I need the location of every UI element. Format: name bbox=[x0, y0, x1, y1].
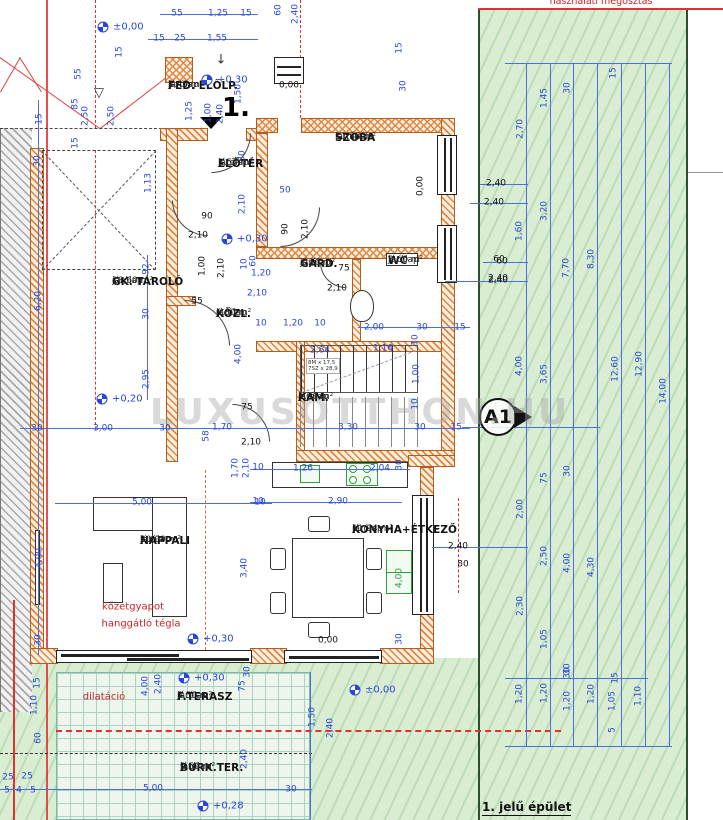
dining-table bbox=[292, 538, 364, 618]
level-value: +0,30 bbox=[203, 634, 234, 645]
dimension-label: 25 bbox=[2, 774, 13, 783]
property-line-left2 bbox=[13, 600, 15, 820]
dimension-label: 80 bbox=[457, 561, 468, 570]
chair bbox=[270, 548, 286, 570]
red-note: dilatáció bbox=[83, 692, 125, 703]
division-note: használati megosztás bbox=[550, 0, 653, 7]
dimension-label: 2,50 bbox=[108, 106, 117, 126]
dimension-label: 2,40 bbox=[488, 277, 508, 286]
wall bbox=[30, 648, 58, 664]
dimension-label: 30 bbox=[159, 425, 170, 434]
dimension-label: 15 bbox=[454, 324, 465, 333]
dimension-label: 15 bbox=[116, 46, 125, 57]
level-marker-icon bbox=[97, 394, 108, 405]
dimension-label: 2,10 bbox=[302, 219, 311, 239]
level-marker-icon bbox=[188, 634, 199, 645]
dimension-label: 2,50 bbox=[82, 106, 91, 126]
level-value: +0,20 bbox=[112, 394, 143, 405]
burner-icon bbox=[363, 476, 371, 484]
eaves-line bbox=[0, 128, 162, 129]
red-note: hanggátló tégla bbox=[102, 619, 181, 630]
level-value: +0,30 bbox=[217, 75, 248, 86]
wall bbox=[408, 455, 455, 467]
dimension-label: 1,20 bbox=[516, 684, 525, 704]
wall bbox=[380, 648, 434, 664]
dimension-label: 60 bbox=[35, 732, 44, 743]
dimension-label: 3,30 bbox=[338, 424, 358, 433]
sliding-door bbox=[284, 650, 382, 663]
axis-line bbox=[205, 470, 206, 650]
dimension-label: 1,50 bbox=[309, 707, 318, 727]
level-value: +0,28 bbox=[213, 801, 244, 812]
dimension-label: 30 bbox=[400, 80, 409, 91]
wall bbox=[301, 118, 455, 133]
benchmark-icon: ▽ bbox=[94, 86, 104, 101]
dimension-label: 2,10 bbox=[188, 232, 208, 241]
sliding-door bbox=[56, 650, 252, 663]
window bbox=[412, 495, 434, 615]
dim-line bbox=[55, 503, 272, 504]
dimension-label: 2,40 bbox=[484, 199, 504, 208]
dimension-label: 60 bbox=[250, 255, 259, 266]
dimension-label: 2,10 bbox=[247, 290, 267, 299]
dimension-label: 5,00 bbox=[132, 499, 152, 508]
down-arrow-icon: ↓ bbox=[216, 53, 227, 68]
wall bbox=[256, 247, 455, 259]
dimension-label: 2,40 bbox=[155, 674, 164, 694]
dimension-label: 2,95 bbox=[143, 369, 152, 389]
dimension-label: 12,90 bbox=[636, 351, 645, 377]
dimension-label: 15 bbox=[34, 677, 43, 688]
dimension-label: 4,00 bbox=[36, 548, 45, 568]
white-margin-right bbox=[690, 0, 723, 820]
chair bbox=[366, 592, 382, 614]
dimension-label: 1,60 bbox=[516, 221, 525, 241]
sofa bbox=[152, 497, 187, 617]
dimension-label: 3,40 bbox=[241, 558, 250, 578]
dimension-label: 75 bbox=[241, 404, 252, 413]
dimension-label: 1,70 bbox=[212, 424, 232, 433]
dimension-label: 2,10 bbox=[243, 458, 252, 478]
dimension-label: 1,20 bbox=[564, 691, 573, 711]
dimension-label: 3,00 bbox=[93, 425, 113, 434]
dimension-label: 2,40 bbox=[241, 749, 250, 769]
level-marker-icon bbox=[350, 685, 361, 696]
dimension-label: 2,50 bbox=[541, 546, 550, 566]
floor-plan-drawing: használati megosztás bbox=[0, 0, 723, 820]
dim-line bbox=[250, 502, 402, 503]
side-table bbox=[103, 563, 123, 603]
red-note: kőzetgyapot bbox=[102, 602, 164, 613]
dimension-label: 60 bbox=[496, 258, 507, 267]
dim-line bbox=[505, 746, 672, 747]
dim-line bbox=[445, 281, 528, 282]
dimension-label: 2,40 bbox=[327, 718, 336, 738]
dimension-label: 92 bbox=[143, 263, 152, 274]
division-line-top bbox=[478, 8, 723, 10]
level-marker-icon bbox=[222, 234, 233, 245]
dimension-label: 1,70 bbox=[232, 458, 241, 478]
dimension-label: 5 bbox=[609, 727, 618, 733]
dimension-label: 1,05 bbox=[541, 629, 550, 649]
burner-icon bbox=[349, 476, 357, 484]
axis-line bbox=[95, 0, 96, 128]
dim-line bbox=[38, 100, 39, 655]
dimension-label: 58 bbox=[203, 430, 212, 441]
boundary-line bbox=[688, 172, 723, 173]
dimension-label: 2,10 bbox=[327, 285, 347, 294]
dimension-label: 5 bbox=[30, 787, 36, 796]
dimension-label: 90 bbox=[282, 223, 291, 234]
wall bbox=[256, 133, 268, 247]
dimension-label: 2,30 bbox=[517, 596, 526, 616]
terrace-axis-line bbox=[0, 753, 312, 754]
level-value: ±0,00 bbox=[365, 685, 396, 696]
dimension-label: 10 bbox=[412, 334, 421, 345]
dimension-label: 55 bbox=[171, 10, 182, 19]
dimension-label: 75 bbox=[541, 472, 550, 483]
dilatation-line bbox=[56, 730, 561, 732]
dimension-label: 1,20 bbox=[251, 270, 271, 279]
dimension-label: 4,00 bbox=[142, 676, 151, 696]
dimension-label: 1,20 bbox=[283, 320, 303, 329]
dimension-label: 3,20 bbox=[541, 201, 550, 221]
chair bbox=[270, 592, 286, 614]
door-swing bbox=[184, 300, 230, 346]
dimension-label: 55 bbox=[75, 68, 84, 79]
dimension-label: 12,60 bbox=[612, 356, 621, 382]
dimension-label: 3,65 bbox=[541, 364, 550, 384]
dim-line bbox=[505, 63, 672, 64]
dimension-label: 2,00 bbox=[364, 324, 384, 333]
dimension-label: 2,40 bbox=[217, 104, 226, 124]
dimension-label: 0,00 bbox=[279, 82, 299, 91]
dimension-label: 30 bbox=[564, 465, 573, 476]
dimension-label: 15 bbox=[36, 113, 45, 124]
dimension-label: 30 bbox=[414, 424, 425, 433]
dimension-label: 1,20 bbox=[588, 684, 597, 704]
dimension-label: 15 bbox=[612, 672, 621, 683]
dimension-label: 10 bbox=[255, 320, 266, 329]
dim-line bbox=[645, 63, 646, 746]
dimension-label: 1,26 bbox=[293, 465, 313, 474]
chair bbox=[366, 548, 382, 570]
dimension-label: 30 bbox=[239, 150, 248, 161]
dimension-label: 1,55 bbox=[207, 35, 227, 44]
dimension-label: 25 bbox=[21, 773, 32, 782]
dimension-label: 30 bbox=[396, 633, 405, 644]
dimension-label: 2,40 bbox=[486, 180, 506, 189]
level-value: ±0,00 bbox=[113, 22, 144, 33]
dimension-label: 15 bbox=[153, 35, 164, 44]
building-label: 1. jelű épület bbox=[482, 800, 571, 816]
dimension-label: 5,00 bbox=[143, 785, 163, 794]
dimension-label: 30 bbox=[416, 324, 427, 333]
dimension-label: 2,10 bbox=[218, 258, 227, 278]
dimension-label: 30 bbox=[244, 666, 253, 677]
dimension-label: 60 bbox=[275, 4, 284, 15]
dimension-label: 30 bbox=[285, 786, 296, 795]
dimension-label: 4,30 bbox=[588, 557, 597, 577]
dimension-label: 30 bbox=[35, 634, 44, 645]
dimension-label: 8,30 bbox=[588, 249, 597, 269]
dimension-label: 2,10 bbox=[239, 194, 248, 214]
level-marker-icon bbox=[198, 801, 209, 812]
dimension-label: 30 bbox=[31, 425, 42, 434]
dimension-label: 2,04 bbox=[370, 465, 390, 474]
dimension-label: 2,70 bbox=[517, 119, 526, 139]
dimension-label: 4,00 bbox=[396, 568, 405, 588]
dimension-label: 2,40 bbox=[448, 543, 468, 552]
dimension-label: 30 bbox=[564, 82, 573, 93]
dimension-label: 15 bbox=[396, 42, 405, 53]
dimension-label: 10 bbox=[252, 464, 263, 473]
dimension-label: 1,00 bbox=[199, 256, 208, 276]
dimension-label: 55 bbox=[191, 298, 202, 307]
dimension-label: 0,00 bbox=[417, 176, 426, 196]
dim-line bbox=[621, 63, 622, 746]
dimension-label: 1,10 bbox=[635, 686, 644, 706]
dimension-label: 6,20 bbox=[35, 291, 44, 311]
level-marker-icon bbox=[98, 22, 109, 33]
dimension-label: 1,20 bbox=[541, 683, 550, 703]
wall bbox=[441, 263, 455, 463]
dimension-label: 15 bbox=[450, 424, 461, 433]
dimension-label: 30 bbox=[34, 155, 43, 166]
dimension-label: 25 bbox=[174, 35, 185, 44]
window bbox=[437, 225, 457, 283]
dimension-label: 1,05 bbox=[609, 691, 618, 711]
dimension-label: 0,00 bbox=[318, 637, 338, 646]
dimension-label: 1,00 bbox=[205, 103, 214, 123]
dimension-label: 4,00 bbox=[516, 356, 525, 376]
wall bbox=[256, 118, 278, 133]
roof-edge-line bbox=[0, 57, 21, 92]
chair bbox=[308, 516, 330, 532]
dimension-label: 1,25 bbox=[186, 101, 195, 121]
dimension-label: 10 bbox=[254, 499, 265, 508]
dimension-label: 15 bbox=[240, 10, 251, 19]
toilet bbox=[350, 290, 374, 322]
dimension-label: 30 bbox=[564, 667, 573, 678]
dimension-label: 10 bbox=[412, 398, 421, 409]
dim-line bbox=[432, 547, 528, 548]
window bbox=[437, 135, 457, 195]
dimension-label: 1,50 bbox=[235, 84, 244, 104]
dimension-label: 30 bbox=[143, 308, 152, 319]
dimension-label: 1,25 bbox=[208, 10, 228, 19]
dimension-label: 4 bbox=[16, 787, 22, 796]
dimension-label: 10 bbox=[314, 320, 325, 329]
dim-line bbox=[505, 678, 648, 679]
dimension-label: 15 bbox=[72, 137, 81, 148]
dimension-label: 1,10 bbox=[31, 695, 40, 715]
level-marker-icon bbox=[202, 75, 213, 86]
dimension-label: 5 bbox=[4, 787, 10, 796]
dimension-label: 2,10 bbox=[241, 439, 261, 448]
dimension-label: 2,84 bbox=[310, 347, 330, 356]
dimension-label: 4,00 bbox=[235, 344, 244, 364]
dimension-label: 1,16 bbox=[373, 345, 393, 354]
dimension-label: 50 bbox=[279, 187, 290, 196]
dimension-label: 4,00 bbox=[564, 553, 573, 573]
dimension-label: 75 bbox=[338, 265, 349, 274]
dimension-label: 85 bbox=[72, 98, 81, 109]
level-value: +0,30 bbox=[237, 234, 268, 245]
dimension-label: 1,45 bbox=[541, 88, 550, 108]
level-value: +0,30 bbox=[194, 673, 225, 684]
neighbour-wall-hatch bbox=[0, 128, 32, 712]
dim-line bbox=[669, 63, 670, 746]
dimension-label: 7,70 bbox=[563, 258, 572, 278]
dimension-label: 30 bbox=[396, 459, 405, 470]
dimension-label: 14,00 bbox=[660, 378, 669, 404]
dimension-label: 75 bbox=[239, 680, 248, 691]
dimension-label: 2,40 bbox=[292, 4, 301, 24]
dimension-label: 1,13 bbox=[145, 173, 154, 193]
property-line-left bbox=[46, 0, 48, 820]
level-marker-icon bbox=[179, 673, 190, 684]
stair-note: 8M x 17,5 7SZ x 28,9 bbox=[306, 358, 340, 374]
dim-line bbox=[310, 672, 311, 820]
dimension-label: 2,90 bbox=[328, 498, 348, 507]
dimension-label: 1,00 bbox=[413, 364, 422, 384]
dimension-label: 90 bbox=[201, 213, 212, 222]
dim-line bbox=[597, 63, 598, 746]
wall bbox=[250, 648, 287, 664]
dimension-label: 15 bbox=[610, 67, 619, 78]
dimension-label: 2,00 bbox=[517, 499, 526, 519]
